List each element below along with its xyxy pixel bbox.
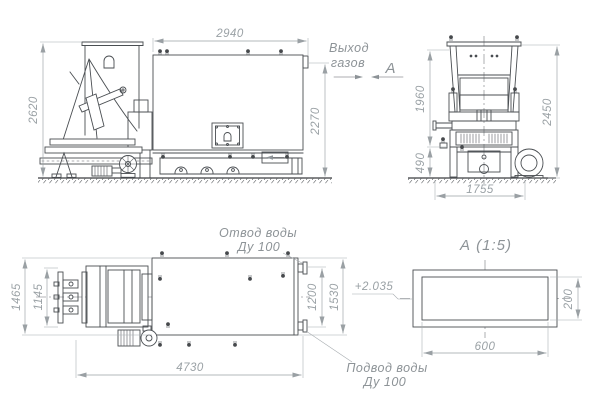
ground-hatch xyxy=(408,179,556,184)
dim-section-height: 200 xyxy=(563,289,575,311)
dim-feeder-width: 1465 xyxy=(11,283,23,311)
dim-flue-height: 2270 xyxy=(310,107,322,136)
flue-duct-section xyxy=(413,270,557,327)
water-inlet-label-line1: Подвод воды xyxy=(346,361,427,375)
front-view: 1960 490 2450 1755 xyxy=(408,35,560,200)
section-a-view: А (1:5) 600 200 +2.035 xyxy=(352,237,582,357)
gas-outlet-annotation: Выход газов А xyxy=(329,41,403,79)
cleanout-box xyxy=(262,152,288,163)
view-direction-arrow-icon xyxy=(371,75,379,80)
dim-body-length: 2940 xyxy=(215,28,244,40)
dim-upper-height: 1960 xyxy=(415,85,427,113)
front-view-dimensions: 1960 490 2450 1755 xyxy=(415,45,560,200)
hydraulic-arm xyxy=(79,89,123,112)
elevation-mark-text: +2.035 xyxy=(355,281,394,293)
elevation-annotation: +2.035 xyxy=(352,281,413,299)
side-view: 2620 2940 2270 xyxy=(28,28,332,183)
hopper-arch-hole xyxy=(104,56,114,68)
firebox-front xyxy=(433,110,519,148)
ground-hatch xyxy=(38,179,332,184)
gas-outlet-flange xyxy=(303,56,308,68)
plan-view: 1465 1145 4730 1200 1530 Отвод воды Ду 1… xyxy=(11,226,428,389)
dim-nozzle-spacing: 1200 xyxy=(307,283,319,311)
boiler-engineering-drawing: 2620 2940 2270 Выход газов А xyxy=(0,0,600,400)
dim-total-height: 2450 xyxy=(542,98,554,127)
blower-fan xyxy=(515,149,543,178)
water-inlet-label-line2: Ду 100 xyxy=(362,375,407,389)
water-inlet-nozzle xyxy=(298,322,303,330)
fan-scroll xyxy=(141,330,157,346)
feeder-table xyxy=(40,139,152,177)
dim-feeder-inner-width: 1145 xyxy=(33,284,45,311)
dim-side-height: 2620 xyxy=(28,96,40,125)
boiler-body-plan xyxy=(152,258,298,335)
gas-flow-arrow-icon xyxy=(355,75,363,80)
water-outlet-nozzle xyxy=(298,264,303,272)
dim-total-length: 4730 xyxy=(176,362,204,374)
water-outlet-label-line1: Отвод воды xyxy=(219,226,297,240)
side-pipe-flange xyxy=(433,121,436,130)
fuel-hopper xyxy=(63,42,143,140)
technical-drawing-canvas: 2620 2940 2270 Выход газов А xyxy=(0,0,600,400)
left-arrow-icon xyxy=(266,155,273,160)
water-outlet-label-line2: Ду 100 xyxy=(236,240,281,254)
dim-base-height: 490 xyxy=(415,153,427,174)
gas-outlet-label-line2: газов xyxy=(331,56,365,70)
dim-front-width: 1755 xyxy=(466,184,494,196)
section-title: А (1:5) xyxy=(459,237,512,254)
fuel-pusher-mechanism xyxy=(54,266,157,346)
view-letter: А xyxy=(384,60,396,77)
dim-section-width: 600 xyxy=(475,341,496,353)
dim-body-depth: 1530 xyxy=(329,283,341,311)
gas-outlet-label-line1: Выход xyxy=(329,41,369,55)
